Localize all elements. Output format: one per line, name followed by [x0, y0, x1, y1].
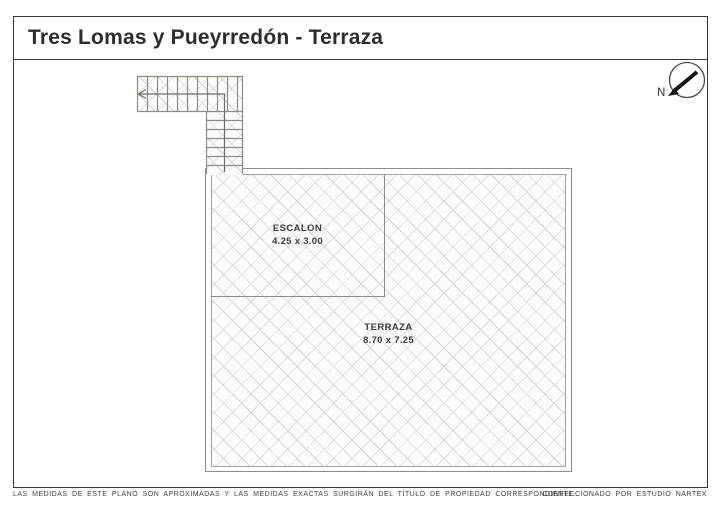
staircase-lower-flight — [207, 76, 243, 175]
escalon-label: ESCALON — [273, 222, 322, 235]
footer-credit: CONFECCIONADO POR ESTUDIO NARTEX — [542, 491, 707, 498]
footer-disclaimer: LAS MEDIDAS DE ESTE PLANO SON APROXIMADA… — [13, 491, 576, 498]
title-band: Tres Lomas y Pueyrredón - Terraza — [14, 17, 707, 60]
page-title: Tres Lomas y Pueyrredón - Terraza — [28, 26, 383, 50]
escalon-dimensions: 4.25 x 3.00 — [272, 235, 323, 248]
escalon-area: ESCALON 4.25 x 3.00 — [211, 174, 385, 297]
